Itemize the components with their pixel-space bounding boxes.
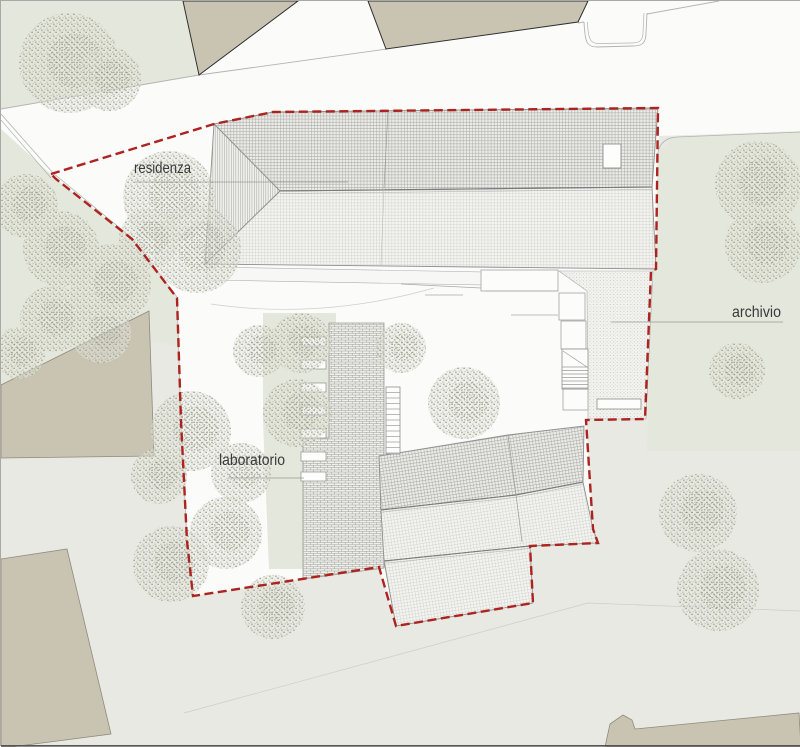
laboratorio-label: laboratorio [219,452,285,469]
courtyard-planter [301,452,326,461]
site-plan-frame: residenza archivio laboratorio [0,0,800,746]
tree [71,303,131,363]
court-structure [563,389,588,410]
residenza-roof-lower-slope [205,187,656,269]
site-plan-drawing: residenza archivio laboratorio [1,1,800,747]
tree [709,343,765,399]
court-structure [559,293,585,320]
tree-canopy-core [449,381,489,421]
tree-canopy-core [740,158,787,205]
residenza-roof-upper-slope [214,108,658,191]
tree [133,526,209,602]
archivio-label: archivio [732,304,781,321]
tree-canopy-core [178,223,226,271]
tree [376,323,426,373]
tree-canopy-core [725,354,756,385]
tree-canopy-core [390,333,418,361]
tree-canopy-core [147,459,178,490]
tree-canopy-core [288,325,321,358]
tree-canopy-core [88,315,121,348]
tree [659,474,737,552]
tree [677,549,759,631]
tree-canopy-core [747,222,789,264]
tree-canopy-core [39,299,75,335]
tree-canopy-core [282,393,319,430]
residenza-skylight [603,144,621,168]
courtyard-planter [301,472,326,481]
east-stair [562,349,588,389]
tree-canopy-core [248,335,277,364]
court-structure [481,270,558,291]
tree [131,448,187,504]
tree [77,47,141,111]
tree [233,325,285,377]
tree [263,379,331,447]
tree [428,367,500,439]
court-bench [597,399,641,409]
tree-canopy-core [681,490,724,533]
residenza-label: residenza [134,160,191,177]
tree-canopy-core [700,565,745,610]
court-structure [561,321,586,349]
west-external-stair [386,387,400,454]
tree [725,207,800,283]
tree-canopy-core [94,260,138,304]
tree-canopy-core [211,511,251,551]
tree-canopy-core [8,337,37,366]
tree-canopy-core [259,588,294,623]
tree-canopy-core [95,60,130,95]
